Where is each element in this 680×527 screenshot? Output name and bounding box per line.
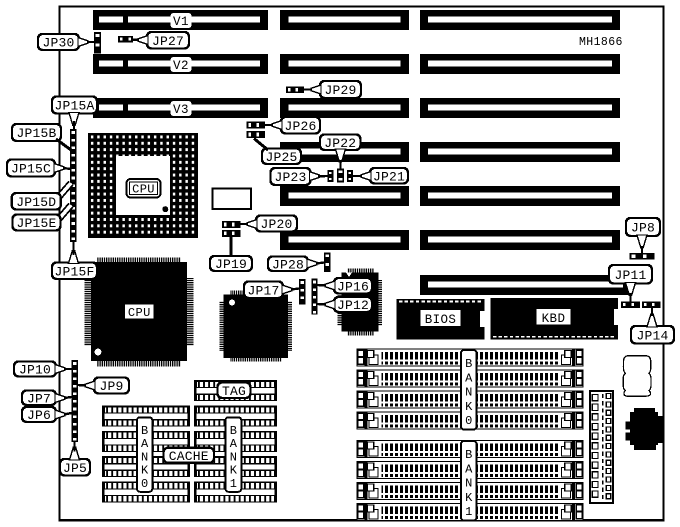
- svg-text:JP27: JP27: [152, 34, 184, 49]
- svg-text:JP15D: JP15D: [16, 195, 56, 210]
- svg-text:JP21: JP21: [373, 169, 405, 184]
- svg-text:A: A: [465, 371, 473, 385]
- svg-text:JP8: JP8: [631, 221, 655, 236]
- svg-text:JP16: JP16: [337, 279, 369, 294]
- svg-text:A: A: [465, 462, 473, 476]
- svg-text:K: K: [465, 400, 473, 414]
- svg-text:V1: V1: [173, 15, 189, 29]
- svg-text:CACHE: CACHE: [169, 449, 209, 464]
- svg-text:JP9: JP9: [99, 379, 123, 394]
- svg-text:JP28: JP28: [272, 257, 304, 272]
- svg-text:V2: V2: [173, 59, 189, 73]
- svg-text:JP15F: JP15F: [54, 264, 94, 279]
- svg-text:N: N: [141, 450, 148, 464]
- svg-text:JP20: JP20: [260, 217, 292, 232]
- svg-text:K: K: [230, 464, 238, 478]
- svg-text:JP30: JP30: [42, 36, 74, 51]
- svg-text:N: N: [465, 386, 472, 400]
- svg-text:1: 1: [465, 505, 472, 519]
- svg-text:B: B: [141, 424, 148, 438]
- svg-text:JP29: JP29: [324, 83, 356, 98]
- svg-text:JP7: JP7: [27, 391, 51, 406]
- svg-text:TAG: TAG: [222, 384, 246, 399]
- svg-text:N: N: [230, 450, 237, 464]
- svg-text:1: 1: [230, 477, 237, 491]
- svg-text:JP15C: JP15C: [11, 162, 51, 177]
- svg-text:JP26: JP26: [284, 119, 316, 134]
- svg-text:MH1866: MH1866: [579, 36, 623, 49]
- svg-text:CPU: CPU: [128, 306, 151, 320]
- svg-text:JP12: JP12: [337, 298, 369, 313]
- svg-text:BIOS: BIOS: [425, 313, 457, 327]
- svg-text:JP15E: JP15E: [16, 216, 56, 231]
- svg-text:JP15A: JP15A: [54, 99, 94, 114]
- svg-text:JP25: JP25: [265, 150, 297, 165]
- svg-text:0: 0: [141, 477, 148, 491]
- svg-text:B: B: [230, 424, 237, 438]
- svg-text:JP19: JP19: [215, 257, 247, 272]
- svg-text:JP15B: JP15B: [16, 126, 56, 141]
- svg-text:JP23: JP23: [274, 170, 306, 185]
- svg-text:JP14: JP14: [636, 328, 668, 343]
- svg-text:B: B: [465, 357, 472, 371]
- svg-text:0: 0: [465, 414, 472, 428]
- svg-text:K: K: [465, 491, 473, 505]
- svg-text:CPU: CPU: [132, 183, 155, 197]
- svg-text:V3: V3: [173, 103, 189, 117]
- svg-text:A: A: [230, 437, 238, 451]
- svg-text:A: A: [141, 437, 149, 451]
- svg-text:JP17: JP17: [247, 283, 279, 298]
- svg-text:JP6: JP6: [27, 408, 51, 423]
- svg-text:JP10: JP10: [19, 363, 51, 378]
- svg-text:JP11: JP11: [614, 268, 646, 283]
- svg-text:KBD: KBD: [542, 312, 566, 326]
- svg-text:JP5: JP5: [63, 461, 87, 476]
- svg-text:N: N: [465, 477, 472, 491]
- svg-text:K: K: [141, 464, 149, 478]
- svg-text:B: B: [465, 448, 472, 462]
